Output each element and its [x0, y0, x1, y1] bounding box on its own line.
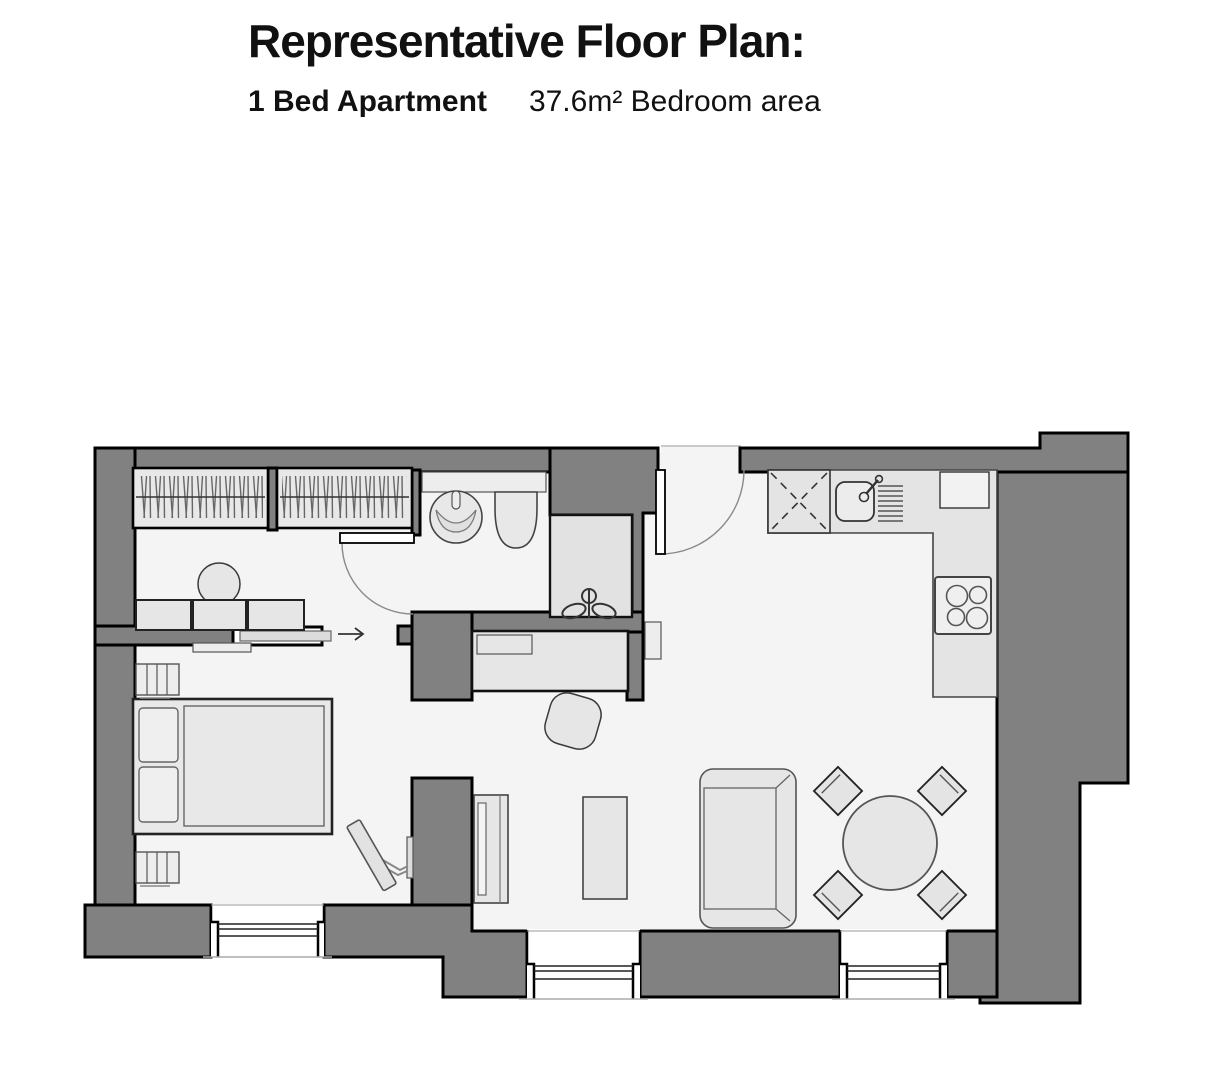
wall-notch	[398, 626, 412, 644]
sofa	[700, 769, 796, 928]
wall-right-mass	[980, 472, 1128, 1003]
window-bay	[211, 904, 324, 957]
wall-nook-right	[627, 632, 643, 700]
floor-plan-drawing	[0, 0, 1208, 1090]
desk-drawer	[477, 635, 532, 654]
sink-bowl	[836, 482, 874, 521]
radiator-lower	[136, 852, 179, 886]
window-bay	[840, 929, 947, 999]
appliance-x-unit	[768, 470, 830, 533]
hanging-clothes	[138, 476, 263, 520]
door-leaf	[656, 470, 665, 554]
wall-shelf	[193, 643, 251, 652]
wash-basin	[430, 491, 482, 543]
wardrobe-right	[277, 468, 412, 528]
wall-left	[95, 448, 135, 907]
hanging-clothes	[282, 476, 407, 520]
wall-panel	[645, 622, 661, 659]
hob	[935, 577, 991, 634]
coffee-table	[583, 797, 627, 899]
desk	[472, 631, 628, 691]
tap	[452, 491, 460, 509]
worktop-appliance	[940, 472, 989, 508]
wardrobe-left	[133, 468, 268, 528]
floor-plan-page: Representative Floor Plan: 1 Bed Apartme…	[0, 0, 1208, 1090]
window-living-left	[519, 929, 648, 999]
dressing-table	[136, 600, 304, 630]
pillow	[139, 767, 178, 822]
tv-screen-edge	[478, 803, 486, 895]
door-leaf	[340, 533, 414, 543]
wall-bottom-middle	[640, 931, 840, 997]
vanity-counter	[422, 472, 546, 492]
sliding-door-panel	[240, 631, 331, 641]
window-living-right	[832, 929, 955, 999]
double-bed	[133, 699, 332, 834]
toilet	[495, 492, 537, 548]
wall-hall-chunk-a	[412, 612, 472, 700]
window-bay	[527, 929, 640, 999]
wall-top-right	[740, 433, 1128, 472]
shower	[550, 515, 632, 621]
pillow	[139, 708, 178, 762]
dining-table	[843, 796, 937, 890]
window-bedroom	[203, 904, 332, 957]
wall-bottom-left	[85, 905, 211, 957]
entry-landing-floor	[661, 445, 741, 472]
wall-wardrobe-divider	[268, 468, 277, 530]
wall-bottom-right-pier	[947, 931, 997, 997]
tv-wall-mount	[407, 837, 413, 878]
radiator-upper	[136, 664, 179, 698]
stool	[198, 563, 240, 605]
tv-unit	[474, 795, 508, 903]
mattress	[184, 706, 324, 826]
